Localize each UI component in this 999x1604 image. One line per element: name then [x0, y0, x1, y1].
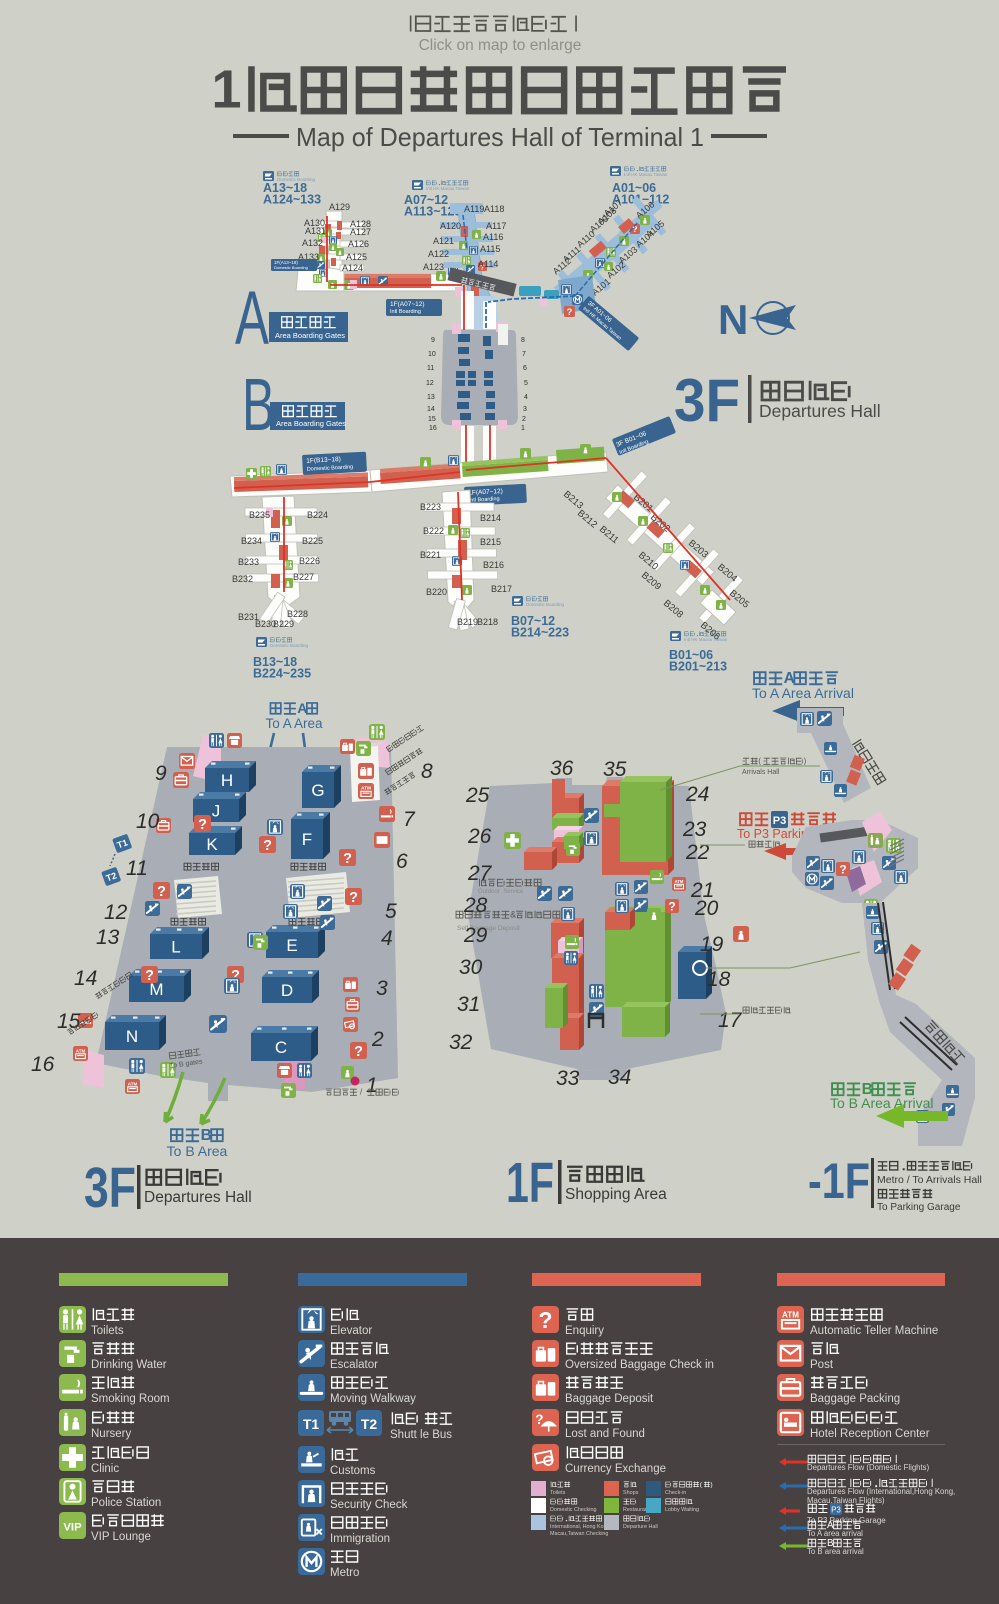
svg-text:B232: B232	[232, 574, 253, 584]
svg-text:9: 9	[155, 762, 167, 785]
svg-text:24: 24	[685, 783, 709, 806]
svg-text:(: (	[758, 757, 761, 766]
svg-text:B214: B214	[480, 513, 501, 523]
svg-text:3: 3	[376, 977, 388, 1000]
svg-text:2: 2	[522, 416, 526, 423]
svg-text:Intl HK Macau Taiwan: Intl HK Macau Taiwan	[624, 172, 668, 177]
svg-text:ATM: ATM	[782, 1310, 799, 1319]
svg-text:14: 14	[74, 967, 97, 990]
svg-text:N: N	[718, 296, 748, 343]
svg-text:Elevator: Elevator	[330, 1325, 372, 1337]
svg-text:Smoking Room: Smoking Room	[91, 1393, 170, 1405]
svg-text:A118: A118	[484, 204, 504, 214]
svg-text:Baggage Packing: Baggage Packing	[810, 1393, 900, 1405]
svg-text:22: 22	[685, 841, 710, 864]
svg-text:B229: B229	[273, 619, 294, 629]
svg-text:N: N	[126, 1027, 138, 1046]
svg-text:12: 12	[426, 380, 434, 387]
svg-text:12: 12	[104, 901, 128, 924]
svg-text:Departures Flow (Domestic Flig: Departures Flow (Domestic Flights)	[807, 1463, 930, 1472]
svg-text:33: 33	[556, 1067, 580, 1090]
svg-text:20: 20	[694, 897, 719, 920]
svg-text:Lost and Found: Lost and Found	[565, 1428, 645, 1440]
svg-text:3F: 3F	[84, 1156, 136, 1220]
svg-text:?: ?	[349, 890, 358, 906]
svg-text:B214~223: B214~223	[511, 626, 569, 640]
svg-text:3F: 3F	[674, 367, 740, 434]
svg-text:Macau,Taiwan Checking: Macau,Taiwan Checking	[550, 1531, 608, 1537]
svg-text:35: 35	[603, 758, 627, 781]
svg-text:L: L	[171, 938, 180, 957]
svg-text:Intl HK Macau Taiwan: Intl HK Macau Taiwan	[426, 186, 470, 191]
svg-text:Domestic Boarding: Domestic Boarding	[274, 265, 308, 270]
svg-text:Check-in: Check-in	[665, 1490, 686, 1496]
svg-text:VIP Lounge: VIP Lounge	[91, 1531, 151, 1543]
svg-text:Lobby Waiting: Lobby Waiting	[665, 1507, 699, 1513]
svg-text:?: ?	[839, 863, 846, 877]
svg-text:1F: 1F	[506, 1151, 554, 1215]
svg-text:B225: B225	[302, 536, 323, 546]
svg-text:7: 7	[403, 808, 416, 831]
svg-text:16: 16	[429, 425, 437, 432]
svg-text:Drinking Water: Drinking Water	[91, 1359, 167, 1371]
svg-text:G: G	[311, 781, 324, 800]
svg-text:Departure Hall: Departure Hall	[623, 1524, 658, 1530]
svg-text:Post: Post	[810, 1359, 834, 1371]
svg-text:Arrivals Hall: Arrivals Hall	[742, 769, 780, 776]
svg-text:A132: A132	[302, 238, 323, 248]
svg-text:28: 28	[463, 894, 488, 917]
svg-text:1: 1	[212, 59, 242, 119]
svg-text:Baggage Deposit: Baggage Deposit	[565, 1393, 654, 1405]
svg-text:Departures Flow (International: Departures Flow (International,Hong Kong…	[807, 1487, 955, 1496]
svg-text:19: 19	[700, 933, 724, 956]
svg-text:To A Area Arrival: To A Area Arrival	[752, 685, 854, 701]
svg-text:17: 17	[718, 1009, 743, 1032]
svg-text:-1F: -1F	[808, 1153, 870, 1209]
svg-text:A122: A122	[428, 249, 449, 259]
svg-text:?: ?	[539, 1307, 553, 1333]
svg-text:?: ?	[354, 1044, 363, 1060]
svg-text:Map of Departures Hall of Term: Map of Departures Hall of Terminal 1	[296, 122, 704, 152]
svg-text:B227: B227	[293, 572, 314, 582]
svg-text:To B area arrival: To B area arrival	[807, 1547, 864, 1556]
svg-text:11: 11	[126, 857, 148, 880]
svg-text:5: 5	[524, 380, 528, 387]
svg-text:B216: B216	[483, 560, 504, 570]
svg-text:Area Boarding Gates: Area Boarding Gates	[276, 419, 346, 428]
svg-text:P3: P3	[773, 815, 786, 827]
svg-text:B220: B220	[426, 587, 447, 597]
svg-text:): )	[804, 757, 807, 766]
svg-text:Nursery: Nursery	[91, 1428, 132, 1440]
svg-text:Automatic Teller Machine: Automatic Teller Machine	[810, 1325, 938, 1337]
svg-text:B221: B221	[420, 550, 441, 560]
svg-text:K: K	[206, 835, 218, 854]
svg-text:Customs: Customs	[330, 1465, 376, 1477]
svg-text:31: 31	[457, 993, 480, 1016]
svg-text:Service: Service	[503, 889, 524, 895]
svg-text:Shutt le Bus: Shutt le Bus	[390, 1429, 452, 1441]
svg-text:7: 7	[522, 351, 526, 358]
svg-text:10: 10	[428, 351, 436, 358]
svg-text:25: 25	[465, 784, 490, 807]
svg-text:B224~235: B224~235	[253, 667, 311, 681]
svg-text:16: 16	[31, 1053, 55, 1076]
svg-text:B234: B234	[241, 536, 262, 546]
svg-text:2: 2	[371, 1028, 384, 1051]
svg-text:36: 36	[550, 757, 574, 780]
svg-text:27: 27	[467, 862, 493, 885]
svg-text:T1: T1	[303, 1416, 320, 1432]
svg-text:1F(A07~12): 1F(A07~12)	[390, 301, 425, 308]
svg-text:A: A	[297, 700, 307, 716]
svg-text:P3: P3	[831, 1506, 841, 1515]
svg-text:?: ?	[343, 851, 352, 867]
svg-text:Intl HK Macau Taiwan: Intl HK Macau Taiwan	[684, 637, 728, 642]
svg-text:?: ?	[198, 817, 207, 833]
svg-text:8: 8	[421, 760, 433, 783]
svg-text:Moving Walkway: Moving Walkway	[330, 1393, 416, 1405]
svg-text:6: 6	[523, 365, 527, 372]
svg-text:4: 4	[381, 927, 393, 950]
svg-text:13: 13	[96, 926, 120, 949]
svg-text:?: ?	[668, 900, 675, 914]
svg-text:A127: A127	[350, 227, 371, 237]
svg-text:Oversized Baggage Check in: Oversized Baggage Check in	[565, 1359, 714, 1371]
svg-text:26: 26	[467, 825, 492, 848]
svg-text:23: 23	[682, 818, 707, 841]
svg-text:A120: A120	[440, 221, 461, 231]
svg-text:Shopping Area: Shopping Area	[565, 1186, 667, 1203]
svg-text:Metro: Metro	[330, 1567, 359, 1579]
svg-text:A117: A117	[486, 221, 506, 231]
svg-text:B228: B228	[287, 609, 308, 619]
svg-text:Restaurant: Restaurant	[623, 1507, 650, 1513]
svg-text:To A Area: To A Area	[265, 716, 323, 731]
svg-text:Toilets: Toilets	[550, 1490, 566, 1496]
svg-text:14: 14	[427, 406, 435, 413]
svg-text:A116: A116	[483, 232, 503, 242]
svg-text:F: F	[302, 830, 312, 849]
svg-text:?: ?	[567, 307, 573, 317]
svg-text:Security Check: Security Check	[330, 1499, 408, 1511]
svg-text:13: 13	[427, 394, 435, 401]
svg-text:To Parking Garage: To Parking Garage	[877, 1202, 961, 1213]
svg-text:Domestic Boarding: Domestic Boarding	[270, 643, 309, 648]
svg-text:To A area arrival: To A area arrival	[807, 1529, 863, 1538]
svg-text:A131: A131	[305, 226, 326, 236]
svg-text:11: 11	[427, 365, 434, 372]
svg-text:29: 29	[463, 924, 488, 947]
svg-text:): )	[710, 1482, 712, 1489]
svg-text:ATM: ATM	[76, 1048, 86, 1053]
svg-text:9: 9	[431, 337, 435, 344]
svg-text:Police Station: Police Station	[91, 1497, 161, 1509]
svg-text:J: J	[212, 802, 221, 821]
svg-text:?: ?	[535, 1412, 543, 1427]
svg-text:C: C	[275, 1038, 287, 1057]
svg-text:To P3 Parking Garage: To P3 Parking Garage	[807, 1516, 886, 1525]
svg-text:A121: A121	[433, 236, 454, 246]
svg-text:A129: A129	[329, 202, 350, 212]
svg-text:B222: B222	[423, 526, 444, 536]
svg-text:H: H	[221, 771, 233, 790]
svg-text:VIP: VIP	[63, 1521, 82, 1533]
svg-text:Area Boarding Gates: Area Boarding Gates	[275, 331, 345, 340]
svg-text:Intl Boarding: Intl Boarding	[390, 309, 421, 315]
svg-text:To B Area Arrival: To B Area Arrival	[830, 1095, 934, 1111]
svg-text:18: 18	[707, 968, 731, 991]
svg-text:8: 8	[521, 337, 525, 344]
svg-text:A125: A125	[346, 252, 367, 262]
svg-text:A114: A114	[478, 259, 498, 269]
svg-text:3: 3	[523, 406, 527, 413]
svg-text:Click on map to enlarge: Click on map to enlarge	[419, 37, 582, 54]
svg-text:4: 4	[524, 394, 528, 401]
svg-text:B218: B218	[477, 617, 498, 627]
svg-text:Enquiry: Enquiry	[565, 1325, 604, 1337]
svg-text:Immigration: Immigration	[330, 1533, 390, 1545]
svg-text:International, Hong Kong,: International, Hong Kong,	[550, 1524, 612, 1530]
svg-text:B223: B223	[420, 502, 441, 512]
svg-text:A119: A119	[464, 204, 484, 214]
svg-text:T2: T2	[361, 1416, 378, 1432]
svg-text:Domestic Boarding: Domestic Boarding	[526, 602, 565, 607]
svg-text:Currency Exchange: Currency Exchange	[565, 1463, 666, 1475]
svg-text:ATM: ATM	[675, 879, 684, 884]
svg-text:Clinic: Clinic	[91, 1463, 119, 1475]
svg-text:B226: B226	[299, 556, 320, 566]
svg-text:?: ?	[263, 838, 272, 854]
svg-text:B: B	[201, 1127, 212, 1144]
svg-text:5: 5	[385, 900, 397, 923]
svg-text:B201~213: B201~213	[669, 660, 727, 674]
svg-text:A123: A123	[423, 262, 444, 272]
svg-text:A: A	[235, 276, 269, 361]
svg-text:Toilets: Toilets	[91, 1325, 124, 1337]
svg-text:B224: B224	[307, 510, 328, 520]
svg-text:Metro / To Arrivals Hall: Metro / To Arrivals Hall	[877, 1174, 982, 1186]
svg-text:Escalator: Escalator	[330, 1359, 378, 1371]
svg-text:D: D	[281, 981, 293, 1000]
svg-text:Departures Hall: Departures Hall	[144, 1189, 252, 1206]
svg-text:34: 34	[608, 1066, 631, 1089]
svg-text:Shops: Shops	[623, 1490, 639, 1496]
svg-text:B233: B233	[238, 557, 259, 567]
svg-text:A115: A115	[480, 244, 500, 254]
svg-text:A124: A124	[342, 263, 363, 273]
svg-text:B219: B219	[457, 617, 478, 627]
svg-text:30: 30	[459, 956, 483, 979]
svg-text:?: ?	[145, 968, 154, 984]
svg-text:A124~133: A124~133	[263, 193, 321, 207]
svg-text:&: &	[510, 910, 516, 920]
svg-text:To B Area: To B Area	[167, 1143, 228, 1159]
svg-text:B215: B215	[480, 537, 501, 547]
svg-text:6: 6	[396, 850, 408, 873]
svg-text:B235: B235	[249, 510, 270, 520]
svg-text:ATM: ATM	[128, 1081, 138, 1086]
svg-text:1: 1	[521, 425, 525, 432]
svg-text:32: 32	[449, 1031, 473, 1054]
svg-text:Departures Hall: Departures Hall	[759, 401, 881, 421]
svg-text:Macau,Taiwan Flights): Macau,Taiwan Flights)	[807, 1496, 885, 1505]
svg-text:Hotel Reception Center: Hotel Reception Center	[810, 1428, 930, 1440]
svg-text:A126: A126	[348, 239, 369, 249]
svg-text:E: E	[286, 936, 297, 955]
svg-text:?: ?	[157, 884, 166, 900]
svg-text:B217: B217	[491, 584, 512, 594]
svg-text:Domestic Checking: Domestic Checking	[550, 1507, 596, 1513]
svg-text:10: 10	[136, 810, 160, 833]
svg-text:15: 15	[428, 416, 436, 423]
